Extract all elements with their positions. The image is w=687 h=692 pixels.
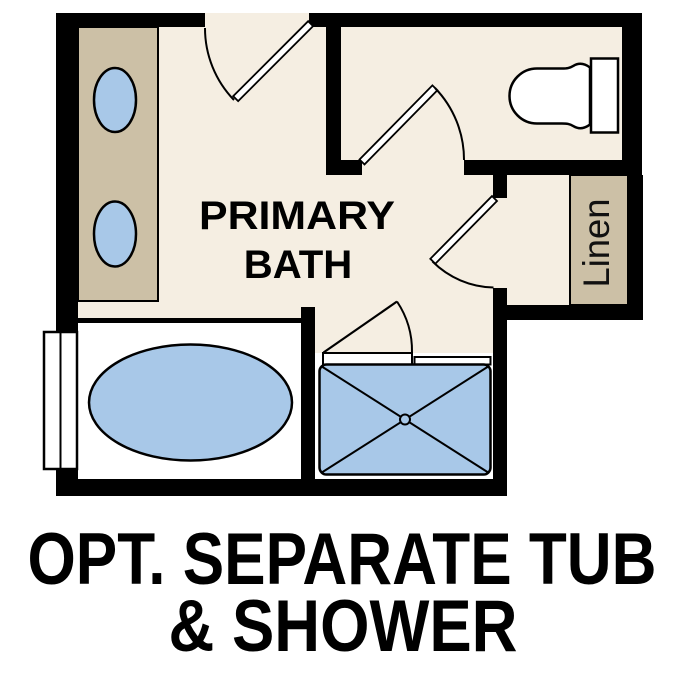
svg-text:Linen: Linen — [576, 199, 617, 288]
svg-text:BATH: BATH — [244, 243, 353, 287]
svg-text:& SHOWER: & SHOWER — [169, 586, 518, 667]
svg-text:PRIMARY: PRIMARY — [199, 194, 395, 238]
